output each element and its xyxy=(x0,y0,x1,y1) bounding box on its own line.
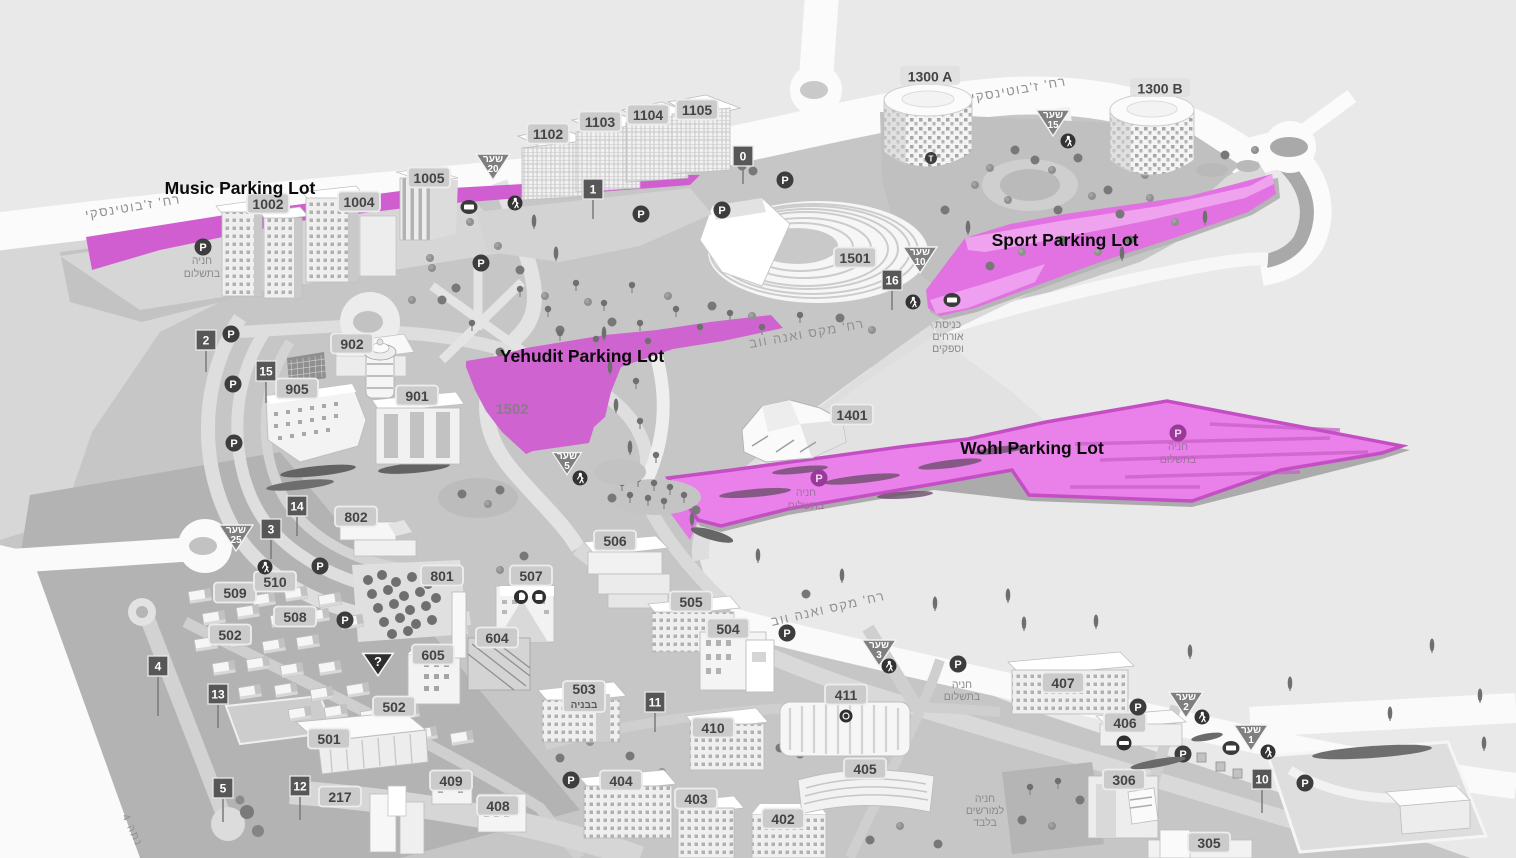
svg-text:1300 B: 1300 B xyxy=(1137,81,1182,97)
svg-text:אורחים: אורחים xyxy=(932,331,964,343)
svg-text:בתשלום: בתשלום xyxy=(184,268,220,280)
svg-text:405: 405 xyxy=(853,761,877,777)
svg-text:13: 13 xyxy=(211,688,225,702)
svg-text:בלבד: בלבד xyxy=(973,817,997,829)
svg-text:למורשים: למורשים xyxy=(966,805,1005,817)
svg-text:404: 404 xyxy=(609,773,633,789)
svg-text:5: 5 xyxy=(564,461,570,472)
svg-text:15: 15 xyxy=(259,365,273,379)
svg-text:507: 507 xyxy=(519,568,543,584)
svg-text:605: 605 xyxy=(421,647,445,663)
svg-text:20: 20 xyxy=(487,164,499,175)
svg-text:כניסת: כניסת xyxy=(935,319,961,331)
svg-text:T: T xyxy=(929,155,934,164)
svg-text:בבניה: בבניה xyxy=(571,700,598,711)
svg-text:1002: 1002 xyxy=(252,196,283,212)
svg-text:1: 1 xyxy=(1248,735,1254,746)
svg-text:1401: 1401 xyxy=(836,407,867,423)
svg-text:402: 402 xyxy=(771,811,795,827)
svg-text:502: 502 xyxy=(218,627,242,643)
svg-text:1105: 1105 xyxy=(682,102,713,118)
svg-text:1104: 1104 xyxy=(633,107,664,123)
svg-text:2: 2 xyxy=(203,334,210,348)
svg-text:403: 403 xyxy=(684,791,708,807)
svg-text:חניה: חניה xyxy=(952,679,972,691)
svg-text:305: 305 xyxy=(1197,835,1221,851)
svg-text:בתשלום: בתשלום xyxy=(1160,454,1196,466)
svg-text:10: 10 xyxy=(1255,773,1269,787)
svg-text:1502: 1502 xyxy=(495,401,528,418)
svg-text:חניה: חניה xyxy=(192,255,212,267)
svg-text:217: 217 xyxy=(328,789,352,805)
svg-text:902: 902 xyxy=(340,336,364,352)
svg-text:4: 4 xyxy=(155,660,162,674)
svg-text:14: 14 xyxy=(290,500,304,514)
svg-text:905: 905 xyxy=(285,381,309,397)
svg-text:0: 0 xyxy=(740,150,747,164)
svg-text:509: 509 xyxy=(223,585,247,601)
svg-text:510: 510 xyxy=(263,574,287,590)
svg-text:1005: 1005 xyxy=(413,170,444,186)
svg-text:3: 3 xyxy=(876,650,882,661)
svg-text:Sport Parking Lot: Sport Parking Lot xyxy=(992,230,1139,250)
svg-text:801: 801 xyxy=(430,568,454,584)
svg-text:1102: 1102 xyxy=(533,126,564,142)
svg-text:12: 12 xyxy=(293,780,307,794)
svg-text:504: 504 xyxy=(716,621,740,637)
svg-text:חניה: חניה xyxy=(975,793,995,805)
svg-text:802: 802 xyxy=(344,509,368,525)
svg-text:15: 15 xyxy=(1047,120,1059,131)
svg-text:1004: 1004 xyxy=(343,194,374,210)
svg-text:וספקים: וספקים xyxy=(932,343,964,355)
svg-text:2: 2 xyxy=(1183,702,1189,713)
svg-text:בתשלום: בתשלום xyxy=(944,691,980,703)
svg-text:501: 501 xyxy=(317,731,341,747)
svg-text:508: 508 xyxy=(283,609,307,625)
svg-text:?: ? xyxy=(374,654,382,669)
svg-text:410: 410 xyxy=(701,720,725,736)
svg-text:10: 10 xyxy=(914,257,926,268)
svg-text:901: 901 xyxy=(405,388,429,404)
svg-text:503: 503 xyxy=(572,681,596,697)
svg-text:בתשלום: בתשלום xyxy=(788,500,824,512)
svg-text:505: 505 xyxy=(679,594,703,610)
svg-text:407: 407 xyxy=(1051,675,1075,691)
svg-text:306: 306 xyxy=(1112,772,1136,788)
svg-text:1300 A: 1300 A xyxy=(908,69,953,85)
svg-text:חניה: חניה xyxy=(1168,441,1188,453)
svg-text:506: 506 xyxy=(603,533,627,549)
svg-text:חניה: חניה xyxy=(796,487,816,499)
svg-text:1501: 1501 xyxy=(839,250,870,266)
svg-text:Music Parking Lot: Music Parking Lot xyxy=(165,178,316,198)
svg-text:409: 409 xyxy=(439,773,463,789)
svg-text:406: 406 xyxy=(1113,715,1137,731)
svg-text:1: 1 xyxy=(590,183,597,197)
svg-text:411: 411 xyxy=(835,687,858,703)
svg-text:11: 11 xyxy=(649,696,662,710)
svg-text:408: 408 xyxy=(486,798,510,814)
svg-text:604: 604 xyxy=(485,630,509,646)
svg-text:Yehudit Parking Lot: Yehudit Parking Lot xyxy=(500,346,664,366)
svg-text:16: 16 xyxy=(885,274,899,288)
svg-text:3: 3 xyxy=(268,523,275,537)
svg-text:1103: 1103 xyxy=(585,114,616,130)
svg-text:502: 502 xyxy=(382,699,406,715)
svg-text:Wohl Parking Lot: Wohl Parking Lot xyxy=(960,438,1104,458)
svg-text:5: 5 xyxy=(220,782,227,796)
svg-text:25: 25 xyxy=(230,535,242,546)
